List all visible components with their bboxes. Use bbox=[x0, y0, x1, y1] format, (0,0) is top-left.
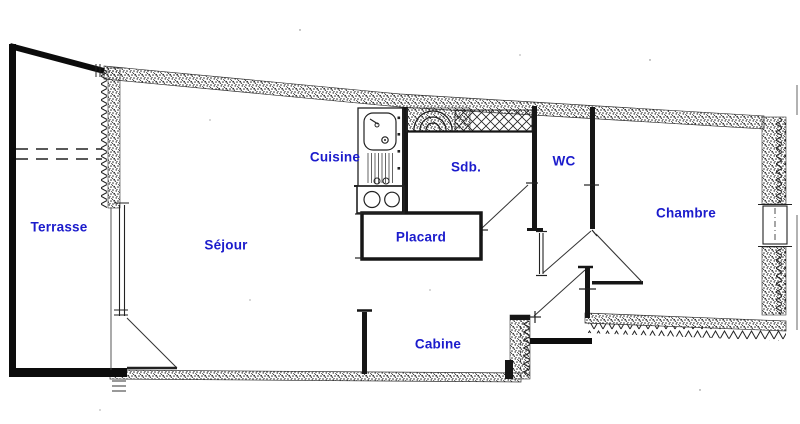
bottom-exterior-wall-left bbox=[110, 370, 521, 382]
floor-plan-page: Terrasse Séjour Cuisine Sdb. WC Chambre … bbox=[0, 0, 800, 424]
entrance-door-swing bbox=[529, 270, 585, 323]
window-right-wall bbox=[758, 205, 792, 247]
room-label-cuisine: Cuisine bbox=[310, 150, 360, 165]
kitchen-counter bbox=[354, 108, 404, 213]
entrance-threshold bbox=[530, 338, 592, 344]
wall-dots bbox=[398, 117, 401, 170]
room-label-sejour: Séjour bbox=[204, 238, 247, 253]
stove-two-burners bbox=[354, 186, 404, 213]
terrace-door-swing bbox=[112, 318, 177, 391]
wc-door-swing bbox=[536, 231, 591, 276]
room-label-placard: Placard bbox=[396, 230, 446, 245]
cabine-right-wall bbox=[505, 315, 530, 379]
room-label-wc: WC bbox=[553, 154, 576, 169]
kitchen-sink bbox=[364, 113, 396, 150]
room-label-terrasse: Terrasse bbox=[31, 220, 88, 235]
room-label-cabine: Cabine bbox=[415, 337, 461, 352]
drainboard-lines bbox=[368, 153, 393, 183]
room-label-sdb: Sdb. bbox=[451, 160, 481, 175]
window-terrace-wall bbox=[111, 203, 129, 370]
bathtub bbox=[407, 108, 532, 149]
bottom-exterior-wall-right bbox=[585, 313, 786, 341]
bathroom-door-swing bbox=[476, 185, 528, 236]
west-exterior-wall bbox=[101, 68, 120, 208]
bedroom-door-swing bbox=[596, 234, 642, 282]
terrace-dashed-lines bbox=[16, 149, 102, 159]
room-label-chambre: Chambre bbox=[656, 206, 716, 221]
